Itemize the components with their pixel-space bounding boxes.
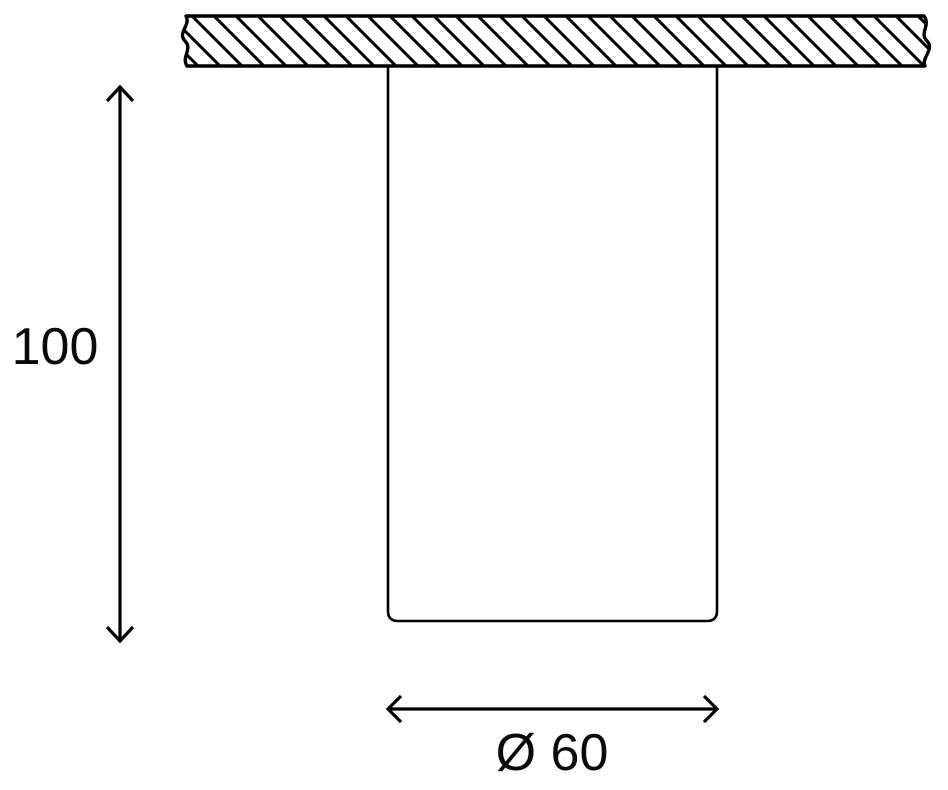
- fixture-dimension-drawing: 100 Ø 60: [0, 0, 948, 790]
- diameter-dimension-arrow: [388, 696, 717, 722]
- height-dimension-arrow: [107, 87, 133, 641]
- ceiling-section-hatch: [182, 16, 929, 66]
- diameter-dimension-label: Ø 60: [496, 724, 609, 782]
- height-dimension-label: 100: [12, 318, 99, 376]
- dimension-drawing-canvas: 100 Ø 60: [0, 0, 948, 790]
- fixture-body: [388, 40, 717, 621]
